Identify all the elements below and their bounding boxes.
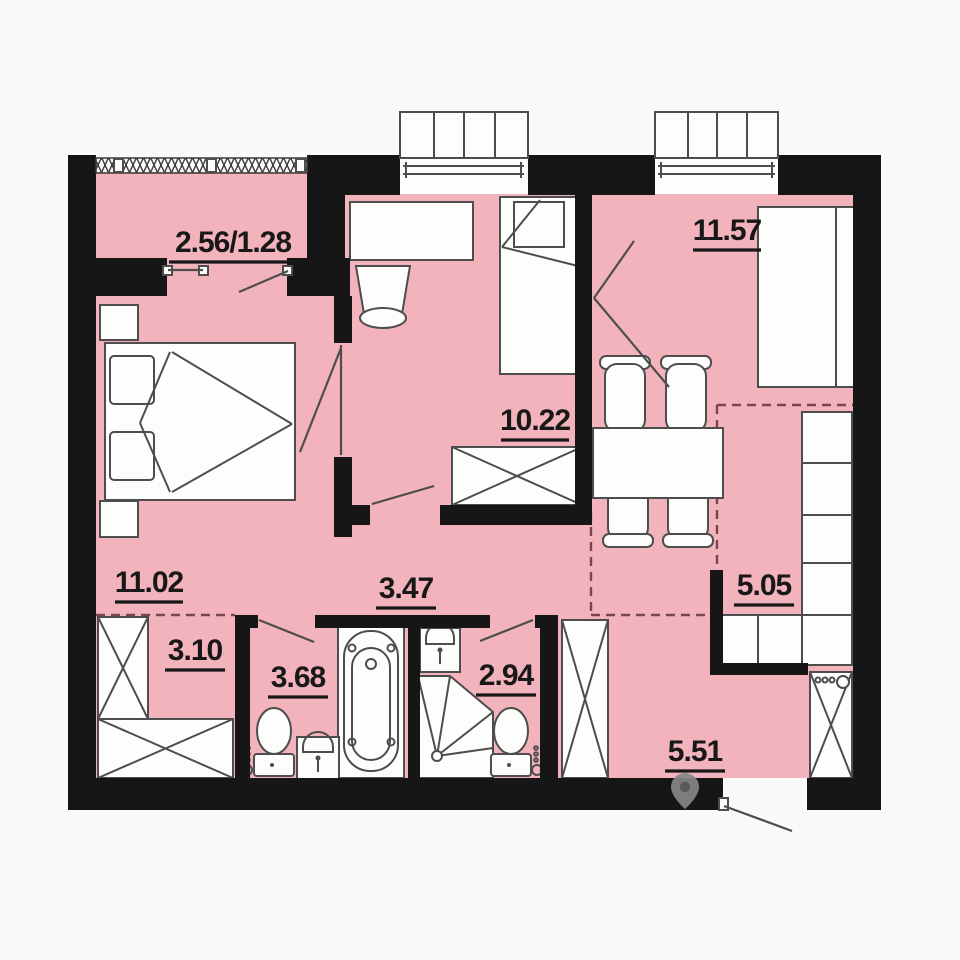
window-bay-living-room [655, 112, 778, 194]
room-label-kids-room: 10.22 [500, 404, 570, 437]
room-label-shower-room: 2.94 [479, 659, 535, 692]
room-label-bathroom: 3.68 [271, 661, 326, 694]
dining-table [593, 428, 723, 498]
pillow [110, 356, 154, 404]
wall-sink [420, 624, 460, 672]
entrance-door [719, 798, 792, 831]
room-label-corridor: 3.47 [379, 572, 434, 605]
desk-chair [356, 266, 410, 328]
balcony-railing [96, 158, 307, 173]
hall-wardrobe [562, 620, 608, 778]
single-bed [500, 197, 580, 374]
bathtub [338, 624, 404, 778]
desk [350, 202, 473, 260]
room-label-wardrobe: 3.10 [168, 634, 223, 667]
tv-stand [452, 447, 582, 505]
sink [297, 732, 339, 779]
window-bay-kids-room [400, 112, 528, 194]
railing-post [296, 159, 305, 172]
room-label-kitchen: 5.05 [737, 569, 792, 602]
floor-plan: 2.56/1.28 11.57 10.22 11.02 3.47 3.10 3.… [0, 0, 960, 960]
railing-post [114, 159, 123, 172]
room-label-hall: 5.51 [668, 735, 723, 768]
nightstand [100, 305, 138, 340]
dining-chair [600, 356, 650, 432]
laundry-closet [810, 672, 852, 778]
railing-post [207, 159, 216, 172]
room-label-balcony: 2.56/1.28 [175, 226, 291, 259]
floor-plan-page: 2.56/1.28 11.57 10.22 11.02 3.47 3.10 3.… [0, 0, 960, 960]
wardrobe-cabinet [758, 207, 854, 387]
nightstand [100, 501, 138, 537]
dining-chair [661, 356, 711, 432]
room-label-living-room: 11.57 [693, 214, 762, 247]
room-label-bedroom: 11.02 [115, 566, 184, 599]
pillow [514, 202, 564, 247]
